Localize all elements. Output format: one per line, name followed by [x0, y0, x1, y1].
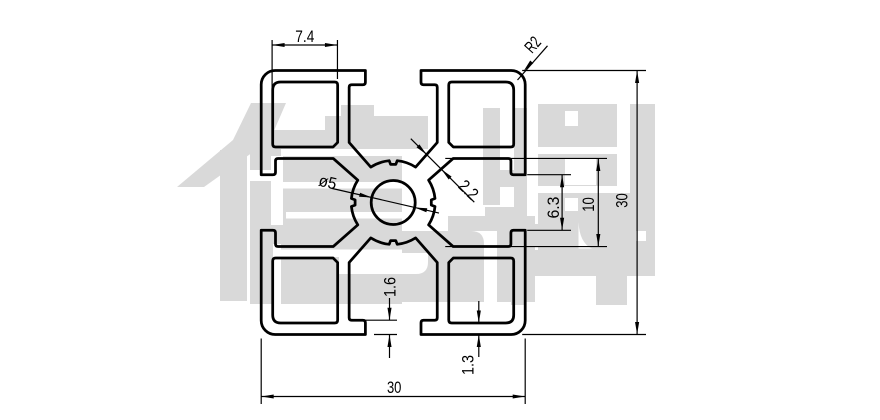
svg-text:30: 30 [387, 378, 402, 397]
svg-text:7.4: 7.4 [295, 27, 314, 46]
svg-text:6.3: 6.3 [544, 197, 563, 219]
svg-text:10: 10 [579, 197, 598, 212]
svg-text:1.6: 1.6 [381, 277, 400, 297]
svg-text:30: 30 [613, 193, 632, 208]
svg-text:1.3: 1.3 [459, 355, 478, 375]
